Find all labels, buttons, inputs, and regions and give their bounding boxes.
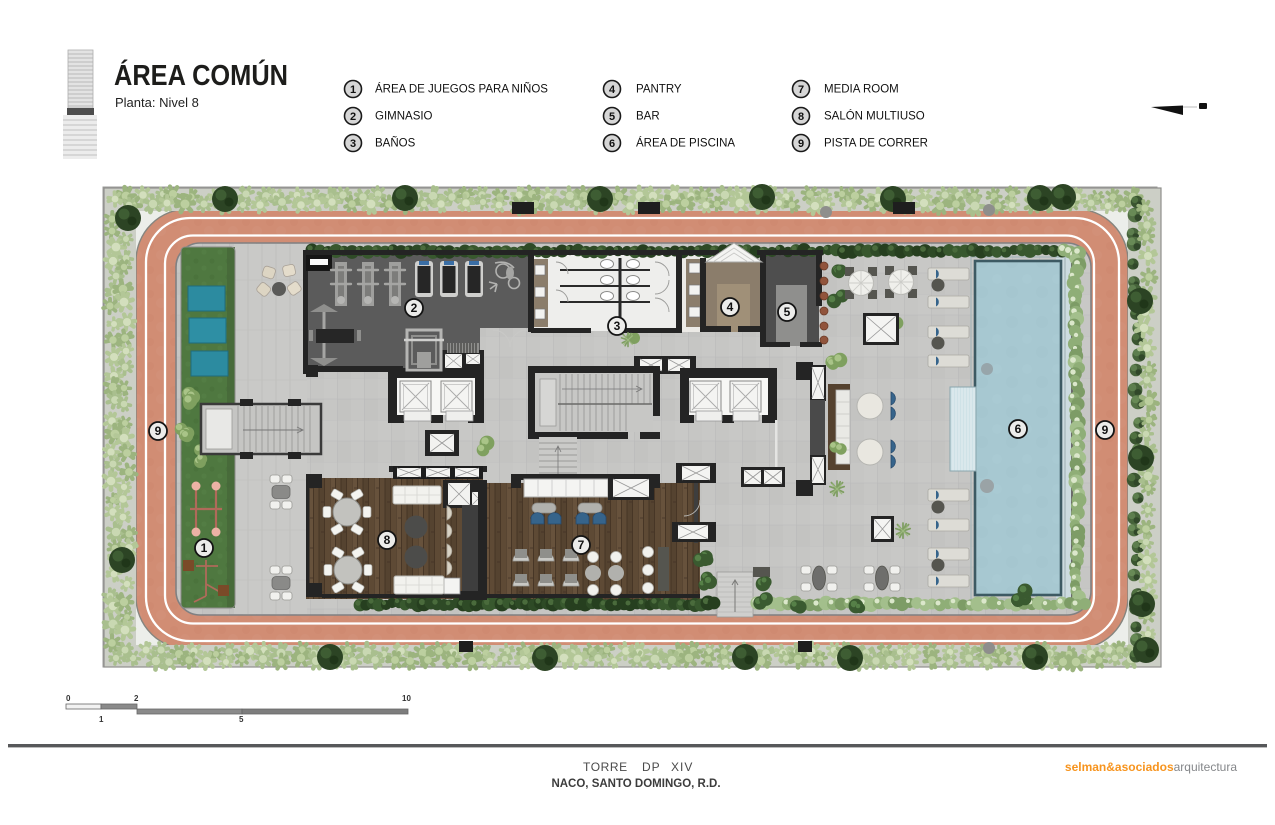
svg-text:NACO, SANTO DOMINGO, R.D.: NACO, SANTO DOMINGO, R.D. (551, 778, 720, 790)
svg-text:1: 1 (350, 84, 356, 96)
svg-text:PISTA DE CORRER: PISTA DE CORRER (824, 138, 928, 150)
svg-text:8: 8 (384, 533, 391, 547)
svg-text:ÁREA DE JUEGOS PARA NIÑOS: ÁREA DE JUEGOS PARA NIÑOS (375, 83, 548, 96)
svg-text:XIV: XIV (671, 760, 693, 774)
svg-text:0: 0 (66, 694, 71, 703)
svg-text:2: 2 (350, 111, 356, 123)
svg-text:5: 5 (609, 111, 615, 123)
svg-text:9: 9 (155, 424, 162, 438)
svg-text:ÁREA COMÚN: ÁREA COMÚN (114, 58, 288, 92)
svg-text:3: 3 (350, 138, 356, 150)
svg-text:MEDIA ROOM: MEDIA ROOM (824, 84, 899, 96)
svg-text:9: 9 (1102, 423, 1109, 437)
svg-text:10: 10 (402, 694, 411, 703)
svg-text:2: 2 (134, 694, 139, 703)
svg-text:5: 5 (239, 715, 244, 724)
svg-text:7: 7 (798, 84, 804, 96)
svg-text:3: 3 (614, 319, 621, 333)
svg-text:2: 2 (411, 301, 418, 315)
svg-text:BAR: BAR (636, 111, 660, 123)
svg-text:5: 5 (784, 305, 791, 319)
svg-text:selman&asociadosarquitectura: selman&asociadosarquitectura (1065, 760, 1237, 774)
svg-text:SALÓN MULTIUSO: SALÓN MULTIUSO (824, 110, 925, 123)
svg-text:4: 4 (609, 84, 616, 96)
svg-text:GIMNASIO: GIMNASIO (375, 111, 433, 123)
svg-text:BAÑOS: BAÑOS (375, 137, 416, 150)
svg-text:6: 6 (609, 138, 615, 150)
svg-text:ÁREA DE PISCINA: ÁREA DE PISCINA (636, 137, 735, 150)
svg-text:9: 9 (798, 138, 804, 150)
svg-text:PANTRY: PANTRY (636, 84, 682, 96)
svg-text:TORRE: TORRE (583, 760, 628, 774)
svg-text:6: 6 (1015, 422, 1022, 436)
svg-text:4: 4 (727, 300, 734, 314)
svg-text:1: 1 (99, 715, 104, 724)
svg-text:7: 7 (578, 538, 585, 552)
svg-text:8: 8 (798, 111, 804, 123)
svg-text:Planta: Nivel 8: Planta: Nivel 8 (115, 95, 199, 110)
svg-text:DP: DP (642, 760, 661, 774)
svg-text:1: 1 (201, 541, 208, 555)
